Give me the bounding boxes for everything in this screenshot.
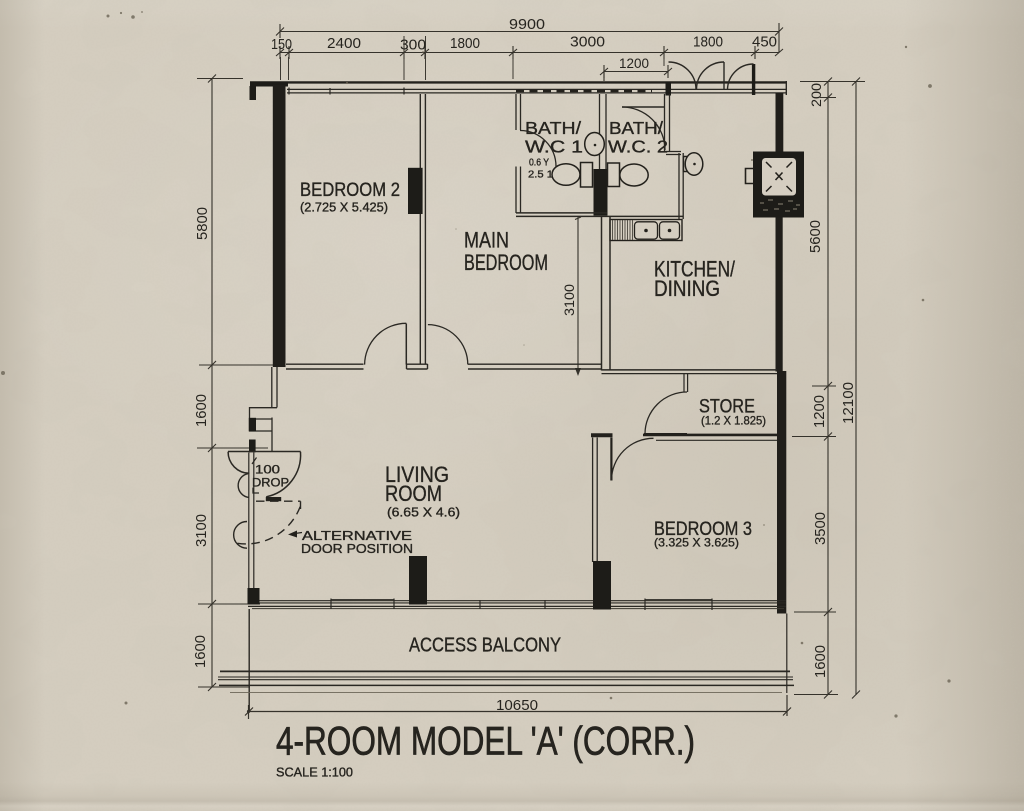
svg-text:12100: 12100 bbox=[840, 382, 857, 424]
svg-text:1600: 1600 bbox=[812, 645, 829, 678]
svg-text:100: 100 bbox=[255, 463, 280, 477]
svg-text:1800: 1800 bbox=[450, 35, 480, 52]
svg-text:2.5 1: 2.5 1 bbox=[528, 169, 553, 181]
svg-text:W.C. 2: W.C. 2 bbox=[608, 137, 668, 157]
svg-text:MAIN: MAIN bbox=[464, 228, 509, 253]
svg-text:10650: 10650 bbox=[496, 698, 538, 714]
svg-text:ROOM: ROOM bbox=[385, 481, 442, 506]
svg-text:2400: 2400 bbox=[327, 35, 361, 52]
svg-text:DROP: DROP bbox=[252, 476, 289, 490]
svg-text:1200: 1200 bbox=[811, 395, 828, 428]
svg-text:W.C 1: W.C 1 bbox=[525, 137, 583, 157]
svg-text:300: 300 bbox=[400, 37, 426, 54]
svg-text:3100: 3100 bbox=[561, 284, 577, 316]
svg-text:ALTERNATIVE: ALTERNATIVE bbox=[302, 529, 412, 543]
svg-text:ACCESS BALCONY: ACCESS BALCONY bbox=[409, 635, 561, 657]
svg-text:200: 200 bbox=[808, 83, 824, 107]
svg-text:4-ROOM MODEL 'A' (CORR.): 4-ROOM MODEL 'A' (CORR.) bbox=[276, 720, 695, 764]
svg-text:(1.2 X 1.825): (1.2 X 1.825) bbox=[701, 414, 766, 428]
svg-text:1800: 1800 bbox=[693, 34, 723, 51]
svg-text:(6.65 X 4.6): (6.65 X 4.6) bbox=[387, 506, 460, 520]
svg-text:3000: 3000 bbox=[570, 34, 605, 51]
svg-text:3100: 3100 bbox=[193, 514, 210, 547]
svg-text:5800: 5800 bbox=[194, 207, 211, 240]
svg-text:3500: 3500 bbox=[812, 512, 829, 545]
svg-text:(2.725 X 5.425): (2.725 X 5.425) bbox=[300, 201, 388, 215]
svg-text:DOOR POSITION: DOOR POSITION bbox=[301, 542, 413, 556]
svg-text:BATH/: BATH/ bbox=[525, 118, 581, 138]
svg-text:5600: 5600 bbox=[807, 220, 824, 253]
svg-text:SCALE 1:100: SCALE 1:100 bbox=[276, 765, 353, 780]
svg-text:BEDROOM: BEDROOM bbox=[464, 250, 548, 275]
svg-text:450: 450 bbox=[752, 34, 777, 51]
svg-text:BEDROOM 2: BEDROOM 2 bbox=[300, 179, 400, 201]
svg-text:150: 150 bbox=[271, 36, 292, 53]
svg-text:DINING: DINING bbox=[654, 276, 720, 301]
svg-text:1200: 1200 bbox=[619, 55, 649, 71]
svg-text:BATH/: BATH/ bbox=[609, 118, 663, 138]
svg-text:(3.325 X 3.625): (3.325 X 3.625) bbox=[654, 536, 739, 550]
svg-text:0.6 Y: 0.6 Y bbox=[529, 157, 549, 169]
svg-text:9900: 9900 bbox=[509, 16, 545, 33]
svg-text:1600: 1600 bbox=[193, 394, 210, 427]
svg-text:1600: 1600 bbox=[192, 635, 209, 668]
